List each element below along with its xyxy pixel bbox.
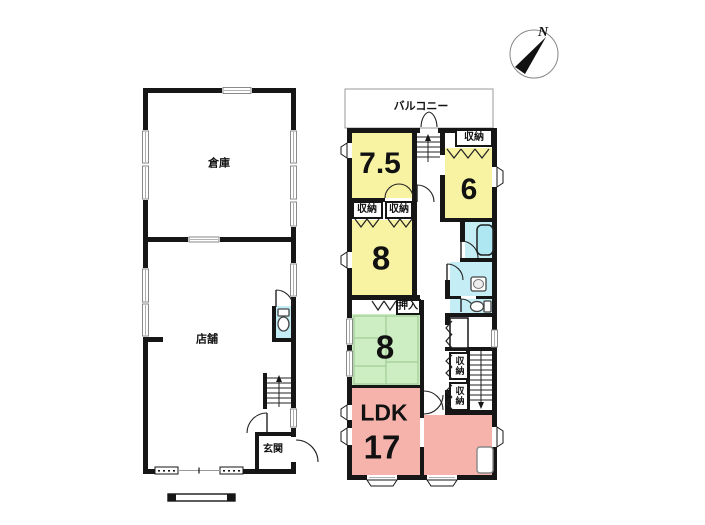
hall-storage-2-label: 収納 bbox=[455, 386, 464, 406]
entrance-label: 玄関 bbox=[263, 445, 283, 455]
store-wall-stub bbox=[148, 337, 163, 342]
floorplan-canvas: N 倉庫 店舗 玄関 バルコニー 収納 7.5 6 収納 収納 8 押入 8 収… bbox=[0, 0, 705, 525]
house-stairs-down bbox=[470, 351, 492, 409]
balcony-label: バルコニー bbox=[394, 102, 449, 113]
stairs-down-arrow bbox=[478, 402, 484, 409]
house-stairs-up bbox=[417, 134, 440, 162]
storefront-shutters bbox=[155, 467, 243, 474]
kitchen-counter-icon bbox=[477, 447, 493, 473]
toilet-icon-house bbox=[471, 301, 492, 312]
ldk-label: LDK bbox=[360, 402, 407, 425]
room-6-label: 6 bbox=[461, 175, 478, 205]
shop-windows bbox=[143, 88, 297, 428]
sink-icon bbox=[471, 277, 486, 291]
room-8-upper-label: 8 bbox=[372, 242, 390, 275]
hall-closet-box bbox=[450, 318, 468, 348]
shop-building-plan bbox=[143, 88, 319, 502]
room-8-tatami-label: 8 bbox=[376, 331, 394, 364]
room-75-label: 7.5 bbox=[359, 149, 401, 179]
storage-a-label: 収納 bbox=[357, 205, 377, 215]
storage-top-label: 収納 bbox=[464, 133, 484, 143]
warehouse-label: 倉庫 bbox=[208, 159, 230, 170]
shop-stairs bbox=[263, 373, 291, 409]
floorplan-linework bbox=[0, 0, 705, 525]
oshiire-label: 押入 bbox=[398, 302, 418, 312]
store-label: 店舗 bbox=[196, 335, 218, 346]
hall-storage-1-label: 収納 bbox=[455, 356, 464, 376]
bathtub-icon bbox=[477, 225, 493, 255]
entrance-door-arc bbox=[296, 440, 318, 462]
landing-door-arc bbox=[247, 413, 267, 433]
toilet-icon-shop bbox=[278, 309, 289, 331]
compass-north-label: N bbox=[538, 26, 548, 40]
storage-b-label: 収納 bbox=[389, 205, 409, 215]
compass bbox=[510, 30, 558, 78]
entry-step bbox=[168, 494, 235, 501]
ldk-size-label: 17 bbox=[364, 431, 401, 464]
